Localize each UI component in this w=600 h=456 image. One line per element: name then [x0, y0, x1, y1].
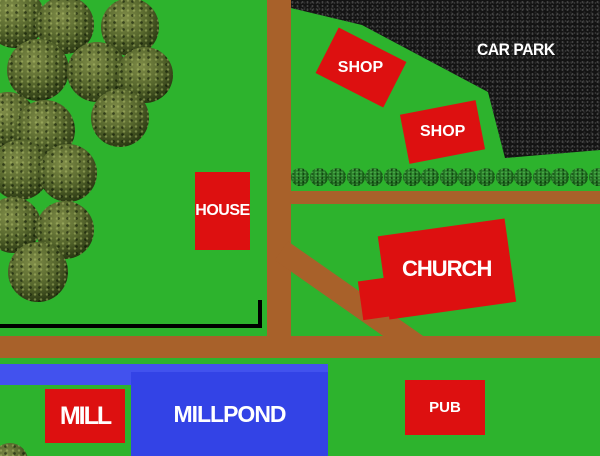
hedge-bush-icon	[514, 168, 532, 186]
road-vertical	[267, 0, 291, 358]
boundary-line-vertical	[258, 300, 262, 326]
building-pub: PUB	[405, 380, 485, 435]
hedge-bush-icon	[551, 168, 569, 186]
tree-icon	[7, 39, 69, 101]
shop-lower-label: SHOP	[420, 123, 465, 141]
mill-label: MILL	[60, 402, 110, 431]
hedge-bush-icon	[328, 168, 346, 186]
shop-upper-label: SHOP	[338, 59, 383, 77]
building-mill: MILL	[45, 389, 125, 443]
boundary-line-horizontal	[0, 324, 262, 328]
hedge-bush-icon	[421, 168, 439, 186]
church-label: CHURCH	[402, 256, 491, 282]
millpond-water: MILLPOND	[131, 372, 328, 456]
building-church: CHURCH	[378, 219, 516, 320]
building-shop-lower: SHOP	[400, 100, 485, 164]
building-house: HOUSE	[195, 172, 250, 250]
hedge-bush-icon	[458, 168, 476, 186]
hedge-bush-icon	[496, 168, 514, 186]
road-upper-horizontal	[267, 191, 600, 204]
tree-icon	[39, 144, 97, 202]
hedge-bush-icon	[291, 168, 309, 186]
village-map: CAR PARK MILLPOND HOUSE SHOP SHOP CHURCH…	[0, 0, 600, 456]
hedge-bush-icon	[403, 168, 421, 186]
hedge-bush-icon	[384, 168, 402, 186]
hedge-bush-icon	[570, 168, 588, 186]
tree-icon	[91, 89, 149, 147]
car-park-label: CAR PARK	[477, 40, 555, 60]
hedge-bush-icon	[477, 168, 495, 186]
hedge-bush-icon	[533, 168, 551, 186]
hedge-bush-icon	[310, 168, 328, 186]
hedge-bush-icon	[365, 168, 383, 186]
road-main-horizontal	[0, 336, 600, 358]
tree-icon	[8, 242, 68, 302]
church-annex	[358, 278, 391, 321]
tree-icon	[0, 443, 28, 456]
pub-label: PUB	[429, 399, 461, 416]
hedge-bush-icon	[589, 168, 600, 186]
hedge-bush-icon	[440, 168, 458, 186]
millpond-label: MILLPOND	[173, 401, 285, 428]
hedge-bush-icon	[347, 168, 365, 186]
house-label: HOUSE	[195, 202, 249, 220]
